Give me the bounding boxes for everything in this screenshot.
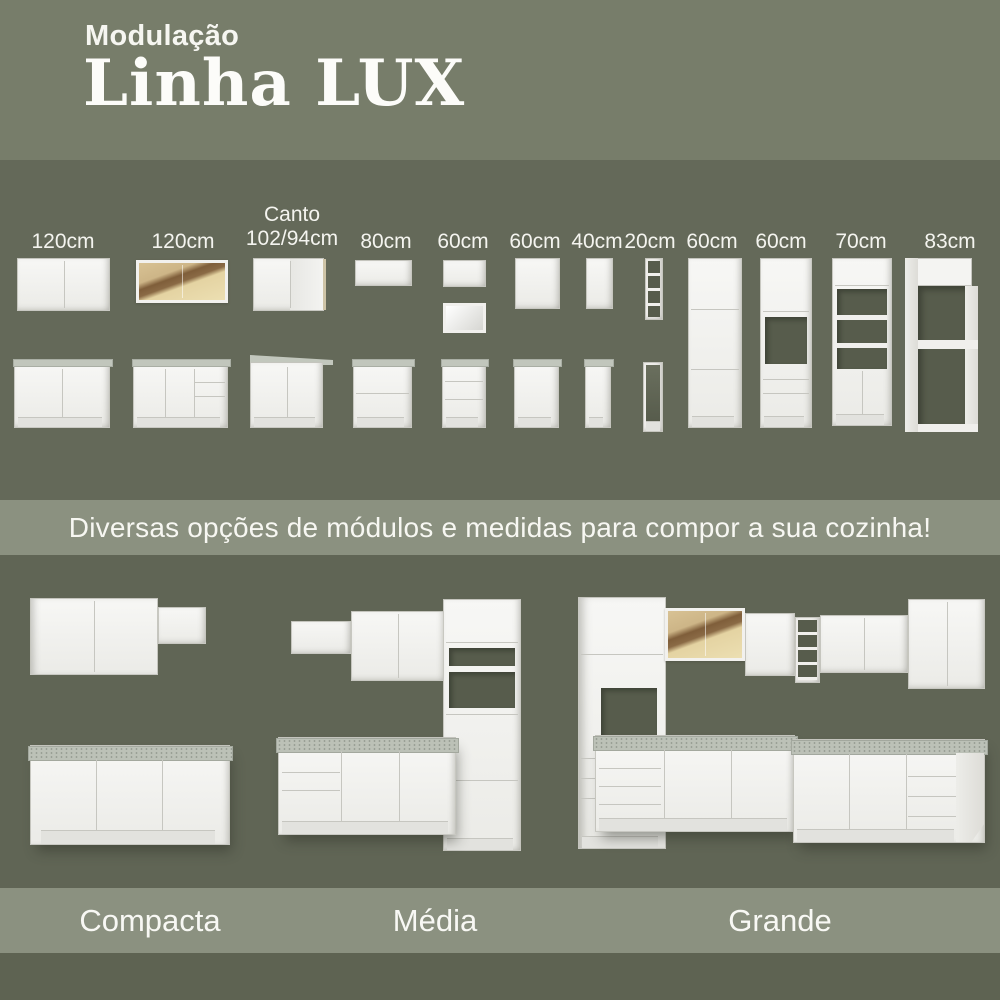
door-divider bbox=[862, 371, 863, 415]
door-divider bbox=[849, 754, 850, 830]
wall-cabinet-80 bbox=[355, 260, 412, 286]
door-divider bbox=[341, 751, 342, 822]
door-divider bbox=[182, 265, 183, 298]
countertop bbox=[352, 359, 415, 367]
base-cabinet-leg bbox=[793, 739, 985, 843]
plinth bbox=[589, 417, 603, 427]
countertop bbox=[28, 746, 233, 761]
wall-cabinet-60 bbox=[443, 260, 486, 287]
drawer-divider bbox=[445, 399, 483, 400]
wall-cabinet bbox=[30, 598, 158, 675]
countertop bbox=[584, 359, 614, 367]
shelf-cubbies bbox=[648, 261, 660, 317]
oven-niche bbox=[765, 317, 807, 364]
drawer-divider bbox=[763, 379, 809, 380]
glass-wall-cabinet bbox=[665, 608, 745, 661]
module-size-label: 120cm bbox=[128, 230, 238, 254]
drawer-divider bbox=[194, 382, 225, 383]
plinth bbox=[582, 836, 658, 848]
drawer-divider bbox=[282, 790, 340, 791]
tagline-band: Diversas opções de módulos e medidas par… bbox=[0, 500, 1000, 555]
kitchens-section bbox=[0, 555, 1000, 888]
door-divider bbox=[691, 309, 739, 310]
fridge-left-panel bbox=[905, 258, 918, 432]
countertop bbox=[593, 736, 798, 751]
tagline-text: Diversas opções de módulos e medidas par… bbox=[69, 512, 931, 544]
tall-oven-tower-60 bbox=[760, 258, 812, 428]
drawer-divider bbox=[599, 768, 661, 769]
layout-labels-band: Compacta Média Grande bbox=[0, 888, 1000, 953]
module-size-label: 83cm bbox=[895, 230, 1000, 254]
wall-cabinet-tall bbox=[908, 599, 985, 689]
tall-shelf-cabinet-70 bbox=[832, 258, 892, 426]
plinth bbox=[137, 417, 220, 427]
wall-cabinet-40 bbox=[586, 258, 613, 309]
plinth bbox=[357, 417, 404, 427]
drawer-divider bbox=[908, 796, 956, 797]
fridge-bottom-band bbox=[918, 424, 978, 432]
door-divider bbox=[864, 618, 865, 670]
countertop bbox=[791, 740, 988, 755]
wall-cabinet-120 bbox=[17, 258, 110, 311]
drawer-divider bbox=[282, 772, 340, 773]
door-divider bbox=[581, 654, 663, 655]
base-drawers-80 bbox=[353, 362, 412, 428]
countertop bbox=[513, 359, 562, 367]
plinth bbox=[447, 838, 513, 850]
door-divider bbox=[763, 311, 809, 312]
plinth bbox=[692, 416, 734, 427]
door-divider bbox=[64, 261, 65, 308]
header-section: Modulação Linha LUX bbox=[0, 0, 1000, 160]
drawer-divider bbox=[908, 816, 956, 817]
base-cabinet-run bbox=[30, 745, 230, 845]
wall-cabinet bbox=[745, 613, 795, 676]
corner-side-panel bbox=[290, 259, 323, 310]
corner-edge-strip bbox=[323, 259, 326, 310]
drawer-divider bbox=[599, 804, 661, 805]
door-divider bbox=[398, 614, 399, 678]
fridge-right-panel bbox=[965, 286, 978, 432]
base-cabinet-run bbox=[595, 735, 795, 832]
wall-cabinet bbox=[291, 621, 351, 654]
drawer-divider bbox=[194, 396, 225, 397]
plinth bbox=[764, 416, 804, 427]
drawer-divider bbox=[356, 393, 409, 394]
shelf bbox=[837, 343, 887, 348]
door-divider bbox=[162, 759, 163, 831]
drawer-divider bbox=[445, 381, 483, 382]
countertop bbox=[13, 359, 113, 367]
plinth bbox=[599, 818, 787, 831]
door-divider bbox=[96, 759, 97, 831]
footer-strip bbox=[0, 953, 1000, 1000]
open-niche bbox=[646, 365, 660, 421]
plinth bbox=[836, 414, 884, 425]
layout-label-compacta: Compacta bbox=[40, 903, 260, 939]
door-divider bbox=[94, 601, 95, 672]
door-divider bbox=[446, 780, 518, 781]
door-divider bbox=[446, 714, 518, 715]
base-drawers-60 bbox=[442, 362, 486, 428]
door-divider bbox=[691, 369, 739, 370]
wall-cabinet-60-door bbox=[515, 258, 560, 309]
tall-pantry-60 bbox=[688, 258, 742, 428]
oven-niche bbox=[449, 672, 515, 708]
door-divider bbox=[906, 754, 907, 830]
door-divider bbox=[705, 613, 706, 656]
plinth bbox=[646, 421, 660, 431]
drawer-divider bbox=[908, 776, 956, 777]
plinth bbox=[282, 821, 448, 834]
countertop bbox=[441, 359, 489, 367]
fridge-open-space bbox=[918, 286, 965, 424]
kitchen-compacta bbox=[25, 590, 275, 860]
end-side-panel bbox=[956, 753, 984, 842]
plinth bbox=[41, 830, 215, 844]
open-niche-box-60 bbox=[443, 303, 486, 333]
base-cabinet-40 bbox=[585, 362, 611, 428]
corner-wall-cabinet bbox=[253, 258, 324, 311]
countertop bbox=[132, 359, 231, 367]
base-cabinet-120-drawers bbox=[133, 362, 228, 428]
door-divider bbox=[399, 751, 400, 822]
plinth bbox=[518, 417, 551, 427]
kitchen-grande bbox=[570, 583, 995, 878]
plinth bbox=[797, 829, 954, 842]
shelf bbox=[918, 340, 978, 349]
module-size-label: 120cm bbox=[8, 230, 118, 254]
countertop bbox=[276, 738, 459, 753]
wall-cabinet bbox=[158, 607, 206, 644]
modules-section: 120cm 120cm Canto 102/94cm 80cm 60cm 60c… bbox=[0, 160, 1000, 500]
microwave-niche bbox=[449, 648, 515, 666]
glass-wall-cabinet-120 bbox=[136, 260, 228, 303]
plinth bbox=[446, 417, 478, 427]
door-divider bbox=[664, 749, 665, 819]
door-divider bbox=[947, 602, 948, 686]
base-cabinet-60-door bbox=[514, 362, 559, 428]
shelf-cubbies bbox=[798, 620, 817, 680]
door-divider bbox=[446, 642, 518, 643]
wall-cabinet-run bbox=[820, 615, 908, 673]
collection-title: Linha LUX bbox=[83, 50, 465, 117]
door-divider bbox=[835, 285, 889, 286]
corner-open-shelves bbox=[795, 617, 820, 683]
open-shelf-niche bbox=[837, 289, 887, 369]
door-divider bbox=[290, 261, 291, 308]
kitchen-media bbox=[278, 585, 548, 870]
corner-base-cabinet bbox=[250, 362, 323, 428]
plinth bbox=[18, 417, 102, 427]
layout-label-grande: Grande bbox=[670, 903, 890, 939]
door-divider bbox=[731, 749, 732, 819]
open-shelf-base-20 bbox=[643, 362, 663, 432]
drawer-divider bbox=[599, 786, 661, 787]
plinth bbox=[254, 417, 315, 427]
open-shelf-wall-20 bbox=[645, 258, 663, 320]
base-cabinet-run bbox=[278, 737, 456, 835]
shelf bbox=[837, 315, 887, 320]
base-cabinet-120 bbox=[14, 362, 110, 428]
fridge-surround-83 bbox=[905, 258, 978, 432]
layout-label-media: Média bbox=[325, 903, 545, 939]
drawer-divider bbox=[763, 393, 809, 394]
wall-cabinet bbox=[351, 611, 445, 681]
